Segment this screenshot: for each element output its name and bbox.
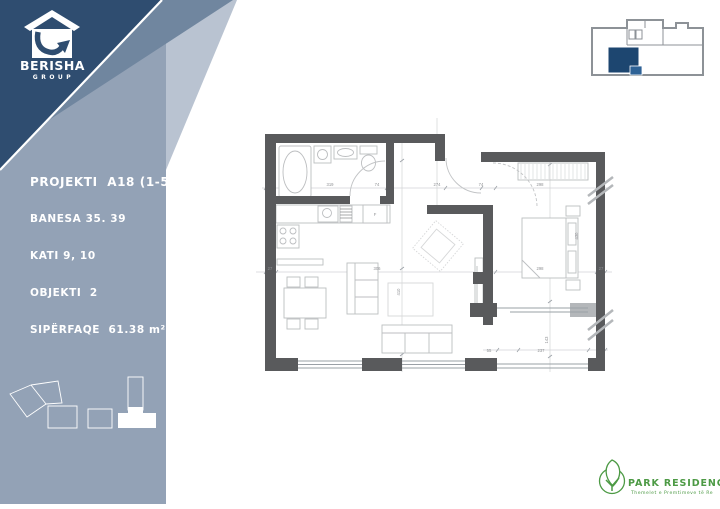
key-plan-highlighted-unit-notch [630, 66, 642, 75]
project-info-line: OBJEKTI 2 [30, 287, 175, 300]
park-residence-tagline: Themelet e Premtimeve të Re [631, 491, 713, 496]
furniture [276, 146, 588, 353]
dimension-label: 274 [434, 182, 442, 187]
dimension-label: 306 [374, 266, 382, 271]
site-highlighted-building [118, 407, 156, 428]
dimension-label: 410 [396, 288, 401, 296]
project-info: PROJEKTI A18 (1-5)BANESA 35. 39KATI 9, 1… [30, 176, 175, 361]
berisha-house-icon [24, 10, 80, 60]
key-plan-inner-walls [627, 20, 703, 45]
project-info-line: BANESA 35. 39 [30, 213, 175, 226]
key-plan-stair [636, 30, 642, 39]
project-info-line: SIPËRFAQE 61.38 m² [30, 324, 175, 337]
dimension-label: 319 [327, 182, 335, 187]
dimension-label: 55 [487, 348, 492, 353]
dimension-label: 143 [544, 336, 549, 344]
site-plan-drawing [4, 372, 162, 432]
brand-text: BERISHA GROUP [20, 60, 84, 81]
dimension-label: 27 [268, 266, 273, 271]
brand-subtitle: GROUP [20, 74, 84, 81]
floor-plan-drawing: 3197427474298273062982741043014355237F [252, 115, 618, 381]
brand-name: BERISHA [20, 60, 84, 72]
project-info-line: PROJEKTI A18 (1-5) [30, 176, 175, 189]
dimension-label: 298 [537, 182, 545, 187]
park-residence-name: PARK RESIDENCE [628, 478, 720, 489]
dimension-label: 430 [574, 232, 579, 240]
key-plan-stair [629, 30, 635, 39]
dimension-label: 74 [375, 182, 380, 187]
dimension-label: 27 [599, 266, 604, 271]
project-info-line: KATI 9, 10 [30, 250, 175, 263]
dimension-label: F [374, 212, 377, 217]
dimension-label: 74 [479, 182, 484, 187]
dimension-label: 298 [537, 266, 545, 271]
brochure-page: BERISHA GROUP PROJEKTI A18 (1-5)BANESA 3… [0, 0, 720, 509]
key-plan [586, 12, 710, 84]
dimension-label: 237 [538, 348, 546, 353]
